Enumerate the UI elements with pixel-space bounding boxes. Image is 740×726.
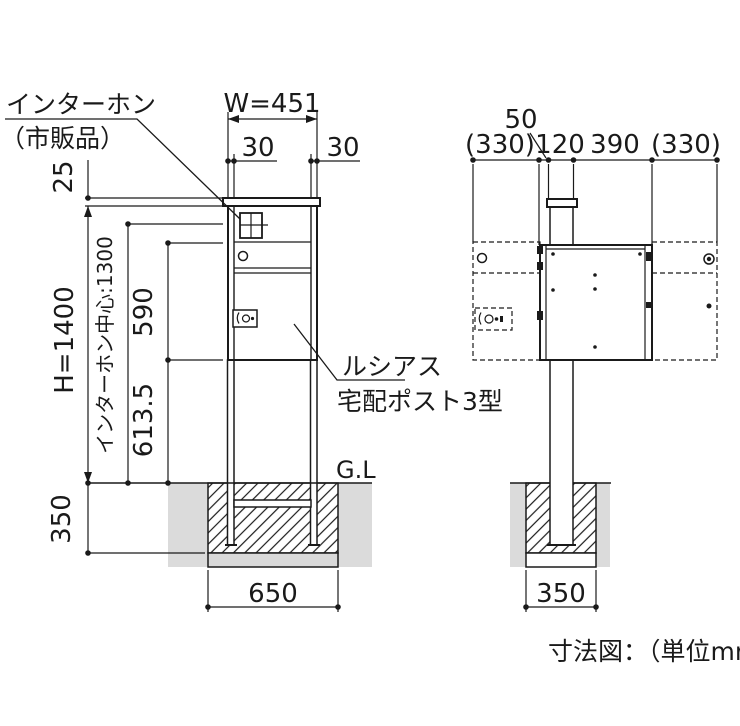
dimension-drawing: W=451 30 30 25 H=1400 インターホン中心:1300 590 …: [0, 0, 740, 726]
dim-underbox-clearance: 613.5: [129, 383, 159, 457]
dim-post-face-left: 30: [241, 133, 274, 163]
intercom-label-line1: インターホン: [6, 90, 156, 119]
dim-footing-width-front: 650: [248, 579, 298, 609]
dim-overall-height: H=1400: [50, 286, 80, 394]
side-call-button-icon: [478, 254, 487, 263]
dim-overall-width: W=451: [223, 89, 320, 119]
dim-intercom-center: インターホン中心:1300: [93, 236, 117, 454]
front-view: [88, 198, 372, 567]
product-label-line2: 宅配ポスト3型: [337, 387, 503, 416]
side-footing-slab: [526, 553, 596, 567]
intercom-label-line2: （市販品）: [0, 124, 125, 153]
dim-box-height: 590: [129, 287, 159, 337]
dim-embed-depth: 350: [47, 494, 77, 544]
dim-box-depth: 390: [590, 130, 640, 160]
dim-footing-width-side: 350: [536, 579, 586, 609]
front-post-left: [228, 360, 235, 545]
side-post-cap: [547, 199, 577, 207]
front-post-right: [311, 360, 318, 545]
side-view: [473, 199, 717, 567]
dim-door-swing-back: (330): [651, 130, 721, 160]
lock-detail-icon: [233, 310, 257, 327]
side-lock-icon: [479, 313, 503, 325]
product-label-line1: ルシアス: [342, 352, 442, 381]
ground-level-label: G.L: [336, 456, 376, 484]
dim-post-depth: 120: [535, 130, 585, 160]
dim-cap-offset: 25: [49, 160, 79, 193]
front-bottom-crossbar: [234, 500, 311, 507]
product-annotation: ルシアス 宅配ポスト3型: [294, 324, 503, 416]
dimension-drawing-canvas: W=451 30 30 25 H=1400 インターホン中心:1300 590 …: [0, 0, 740, 726]
side-box-body: [540, 245, 652, 360]
dim-post-face-right: 30: [326, 133, 359, 163]
front-footing-slab: [208, 553, 338, 567]
intercom-annotation: インターホン （市販品）: [0, 90, 240, 219]
front-top-cap: [223, 198, 320, 206]
dim-door-swing-front: (330): [465, 130, 535, 160]
side-knob-icon: [704, 254, 714, 309]
drawing-caption: 寸法図：（単位mm）: [548, 637, 740, 666]
